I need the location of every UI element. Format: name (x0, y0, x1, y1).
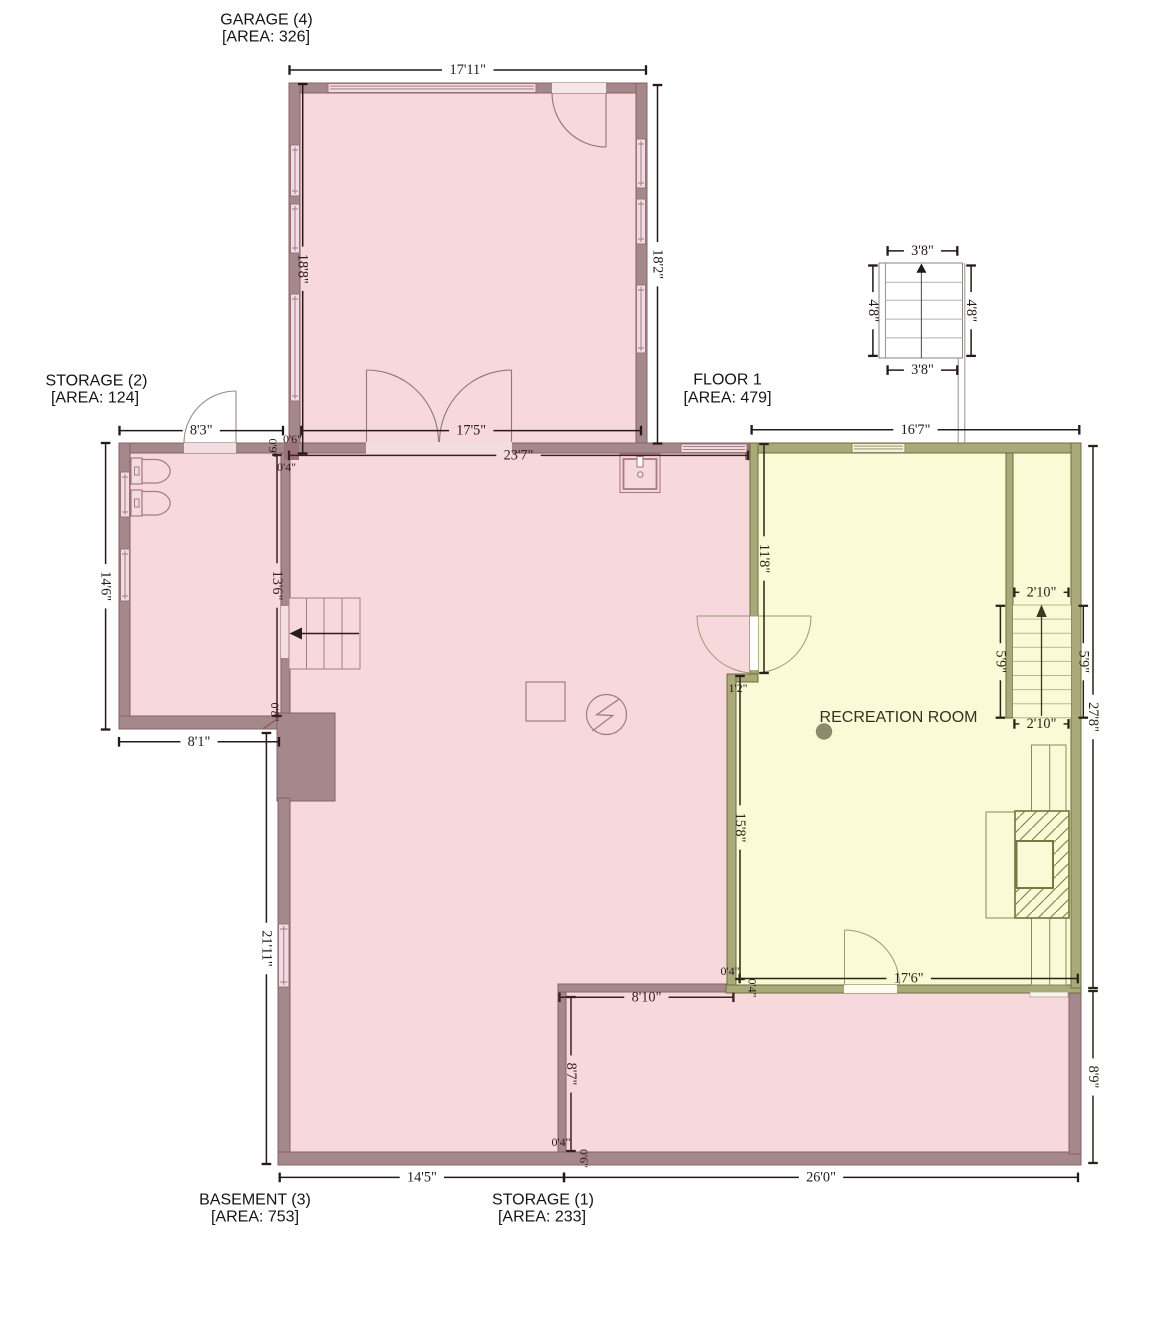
svg-text:4'8": 4'8" (963, 299, 979, 322)
svg-text:0'6": 0'6" (283, 432, 302, 446)
svg-text:BASEMENT (3): BASEMENT (3) (199, 1192, 311, 1209)
svg-text:8'1": 8'1" (188, 734, 211, 750)
svg-text:0'4": 0'4" (746, 978, 760, 997)
svg-text:17'6": 17'6" (894, 971, 924, 987)
svg-text:8'7": 8'7" (563, 1063, 579, 1086)
svg-text:14'6": 14'6" (98, 571, 114, 601)
svg-text:11'8": 11'8" (756, 544, 772, 573)
svg-text:STORAGE (1): STORAGE (1) (492, 1192, 594, 1209)
svg-text:[AREA: 233]: [AREA: 233] (498, 1209, 586, 1226)
svg-text:18'2": 18'2" (650, 249, 666, 279)
svg-text:5'9": 5'9" (992, 650, 1008, 673)
svg-text:2'10": 2'10" (1027, 584, 1057, 600)
svg-text:FLOOR 1: FLOOR 1 (693, 372, 762, 389)
svg-text:0'6": 0'6" (577, 1149, 591, 1168)
svg-text:[AREA: 753]: [AREA: 753] (211, 1209, 299, 1226)
svg-text:5'9": 5'9" (1075, 650, 1091, 673)
svg-text:3'8": 3'8" (911, 362, 934, 378)
svg-text:15'8": 15'8" (732, 813, 748, 843)
svg-text:8'9": 8'9" (1085, 1066, 1101, 1089)
svg-text:17'5": 17'5" (456, 423, 486, 439)
svg-text:0'9": 0'9" (266, 438, 280, 457)
svg-text:GARAGE (4): GARAGE (4) (220, 12, 312, 29)
svg-text:8'10": 8'10" (632, 989, 662, 1005)
svg-text:14'5": 14'5" (407, 1169, 437, 1185)
svg-text:RECREATION ROOM: RECREATION ROOM (820, 709, 978, 726)
svg-text:16'7": 16'7" (901, 422, 931, 438)
svg-text:18'8": 18'8" (295, 254, 311, 284)
svg-text:1'2": 1'2" (728, 681, 747, 695)
svg-text:4'8": 4'8" (865, 299, 881, 322)
svg-text:26'0": 26'0" (806, 1169, 836, 1185)
svg-text:[AREA: 124]: [AREA: 124] (51, 390, 139, 407)
svg-text:3'8": 3'8" (911, 243, 934, 259)
svg-text:13'6": 13'6" (269, 571, 285, 601)
svg-text:0'4": 0'4" (551, 1135, 570, 1149)
svg-text:21'11": 21'11" (258, 930, 274, 966)
svg-text:2'10": 2'10" (1027, 716, 1057, 732)
svg-text:0'4": 0'4" (277, 460, 296, 474)
svg-text:8'3": 8'3" (190, 423, 213, 439)
svg-text:[AREA: 479]: [AREA: 479] (683, 390, 771, 407)
svg-text:[AREA: 326]: [AREA: 326] (222, 29, 310, 46)
svg-text:0'8": 0'8" (268, 702, 282, 721)
svg-text:0'4": 0'4" (720, 964, 739, 978)
svg-text:17'11": 17'11" (450, 62, 486, 78)
svg-text:STORAGE (2): STORAGE (2) (46, 373, 148, 390)
svg-text:23'7": 23'7" (504, 447, 534, 463)
